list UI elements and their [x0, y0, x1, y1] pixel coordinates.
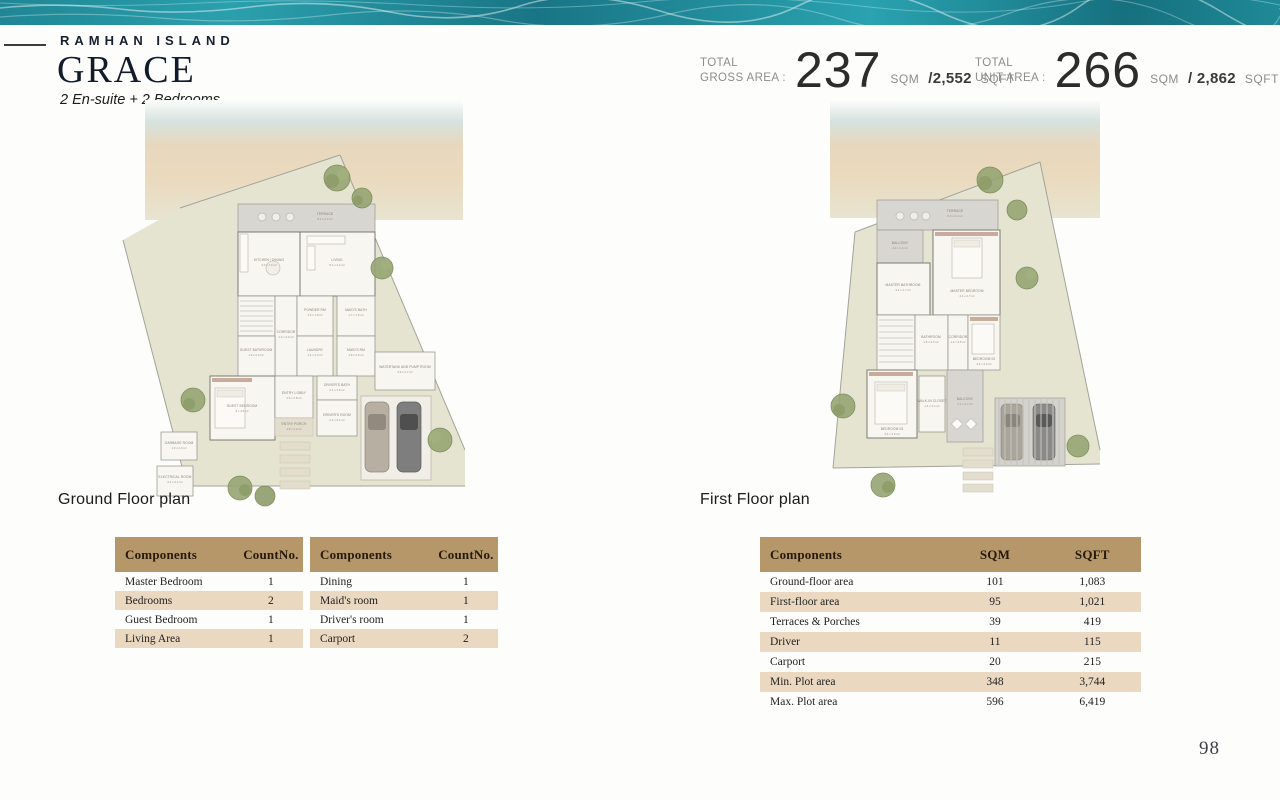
- table-row: Living Area1: [115, 629, 303, 648]
- table-row: Bedrooms2: [115, 591, 303, 610]
- table-cell: Carport: [310, 629, 434, 648]
- stat-label-line1: TOTAL: [975, 57, 1013, 69]
- table-cell: 1: [434, 572, 498, 591]
- car-icon: [397, 402, 421, 472]
- table-cell: First-floor area: [760, 592, 946, 612]
- column-header: Components: [115, 537, 239, 572]
- gross-area-stat: TOTAL GROSS AREA : 237 SQM /2,552 SQFT: [700, 50, 1015, 91]
- gross-area-sqm-value: 237: [795, 50, 881, 91]
- unit-area-label: TOTAL UNIT AREA :: [975, 56, 1046, 91]
- table-cell: 2: [239, 591, 303, 610]
- room-label: MASTER BEDROOM: [950, 289, 983, 293]
- page-title: GRACE: [57, 48, 196, 92]
- water-texture-banner: [0, 0, 1280, 25]
- sqm-unit: SQM: [1150, 72, 1179, 91]
- room-label: GUEST BATHROOM: [240, 348, 273, 352]
- room-dims: 3.0 x 7.4 m²: [261, 263, 276, 267]
- table-cell: 419: [1044, 612, 1141, 632]
- room-label: TERRACE: [317, 212, 334, 216]
- table-row: Carport2: [310, 629, 498, 648]
- room-dims: 3.4 x 3.0 m²: [976, 362, 991, 366]
- room-label: BEDROOM 02: [973, 357, 996, 361]
- sqm-unit: SQM: [890, 72, 919, 91]
- room-label: WALK-IN CLOSET: [917, 399, 946, 403]
- room-label: GUEST BEDROOM: [227, 404, 258, 408]
- room-label: DRIVER'S ROOM: [323, 413, 351, 417]
- tree-icon: [181, 388, 205, 412]
- area-breakdown-table: ComponentsSQMSQFTGround-floor area1011,0…: [760, 537, 1141, 712]
- table-header-row: ComponentsCountNo.: [115, 537, 303, 572]
- sqft-unit: SQFT: [1245, 72, 1279, 91]
- table-row: First-floor area951,021: [760, 592, 1141, 612]
- room-label: WATERTANK AND PUMP ROOM: [379, 365, 431, 369]
- column-header: CountNo.: [239, 537, 303, 572]
- unit-area-sqft-value: / 2,862: [1188, 70, 1236, 91]
- table-cell: 1,021: [1044, 592, 1141, 612]
- table-cell: Living Area: [115, 629, 239, 648]
- tree-icon: [977, 167, 1003, 193]
- page-number: 98: [1199, 738, 1220, 760]
- room-dims: 2.2 x 1.4 m²: [892, 246, 907, 250]
- room-dims: 1.6 x 3.0 m²: [923, 340, 938, 344]
- table-row: Master Bedroom1: [115, 572, 303, 591]
- first-floor-plan: TERRACE 8.2 x 2.2 m² BALCONY 2.2 x 1.4 m…: [815, 100, 1105, 510]
- table-cell: 95: [946, 592, 1043, 612]
- first-floor-caption: First Floor plan: [700, 491, 810, 509]
- table-cell: 6,419: [1044, 692, 1141, 712]
- room-dims: 1.4 x 3.0 m²: [307, 353, 322, 357]
- room-label: BATHROOM: [921, 335, 941, 339]
- unit-area-sqm-value: 266: [1055, 50, 1141, 91]
- table-row: Driver's room1: [310, 610, 498, 629]
- room-dims: 2.2 x 2.1 m²: [167, 480, 182, 484]
- table-row: Ground-floor area1011,083: [760, 572, 1141, 592]
- table-header-row: ComponentsSQMSQFT: [760, 537, 1141, 572]
- room-dims: 1.6 x 1.8 m²: [307, 313, 322, 317]
- carport-roof: [995, 398, 1065, 466]
- room-label: BEDROOM 03: [881, 427, 904, 431]
- room-label: DRIVER'S BATH: [324, 383, 351, 387]
- table-cell: 11: [946, 632, 1043, 652]
- table-cell: 1: [239, 572, 303, 591]
- tree-icon: [228, 476, 252, 500]
- room-dims: 1.6 x 2.8 m²: [286, 396, 301, 400]
- header-rule: [4, 44, 46, 46]
- room-dims: 1.9 x 2.0 m²: [171, 446, 186, 450]
- room-dims: 1.2 x 4.4 m²: [278, 335, 293, 339]
- table-row: Min. Plot area3483,744: [760, 672, 1141, 692]
- table-cell: 115: [1044, 632, 1141, 652]
- stat-label-line1: TOTAL: [700, 57, 738, 69]
- table-cell: Driver's room: [310, 610, 434, 629]
- ground-floor-caption: Ground Floor plan: [58, 491, 190, 509]
- room-label: ELECTRICAL ROOM: [159, 475, 192, 479]
- room-dims: 3 x 4.5 m²: [236, 409, 249, 413]
- tree-icon: [255, 486, 275, 506]
- room-dims: 3.4 x 4.6 m²: [884, 432, 899, 436]
- room-label: LIVING: [331, 258, 343, 262]
- room-label: ENTRY PORCH: [282, 422, 307, 426]
- gross-area-label: TOTAL GROSS AREA :: [700, 56, 786, 91]
- table-cell: 1: [434, 610, 498, 629]
- components-count-table-2: ComponentsCountNo.Dining1Maid's room1Dri…: [310, 537, 498, 648]
- room-dims: 1.9 x 2.3 m²: [348, 353, 363, 357]
- column-header: CountNo.: [434, 537, 498, 572]
- column-header: SQFT: [1044, 537, 1141, 572]
- table-row: Max. Plot area5966,419: [760, 692, 1141, 712]
- tree-icon: [1007, 200, 1027, 220]
- tree-icon: [428, 428, 452, 452]
- room-label: MASTER BATHROOM: [886, 283, 921, 287]
- tree-icon: [324, 165, 350, 191]
- table-cell: Ground-floor area: [760, 572, 946, 592]
- stat-label-line2: GROSS AREA :: [700, 72, 786, 84]
- table-cell: Max. Plot area: [760, 692, 946, 712]
- table-cell: 20: [946, 652, 1043, 672]
- room-label: GARBAGE ROOM: [165, 441, 194, 445]
- column-header: SQM: [946, 537, 1043, 572]
- tree-icon: [1016, 267, 1038, 289]
- room-dims: 2.1 x 3.1 m²: [329, 418, 344, 422]
- table-cell: 101: [946, 572, 1043, 592]
- table-cell: Driver: [760, 632, 946, 652]
- table-cell: Bedrooms: [115, 591, 239, 610]
- room-dims: 1.7 x 1.5 m²: [348, 313, 363, 317]
- walkway-pavers: [963, 448, 993, 492]
- gross-area-sqft-value: /2,552: [928, 70, 972, 91]
- sofa: [307, 236, 345, 244]
- room-dims: 3.9 x 2.7 m²: [397, 370, 412, 374]
- water-ripples: [0, 0, 1280, 25]
- table-cell: 1: [239, 629, 303, 648]
- room-dims: 2.2 x 4.7 m²: [957, 402, 972, 406]
- car-icon: [365, 402, 389, 472]
- table-cell: Master Bedroom: [115, 572, 239, 591]
- tree-icon: [1067, 435, 1089, 457]
- table-cell: 2: [434, 629, 498, 648]
- brand-name: RAMHAN ISLAND: [60, 33, 235, 48]
- table-cell: 1: [434, 591, 498, 610]
- ground-floor-plan: TERRACE 8.2 x 2.2 m² KITCHEN / DINING 3.…: [75, 100, 465, 510]
- room-label: CORRIDOR: [277, 330, 296, 334]
- kitchen-counter: [240, 234, 248, 272]
- table-row: Guest Bedroom1: [115, 610, 303, 629]
- stat-label-line2: UNIT AREA :: [975, 72, 1046, 84]
- room-dims: 1.2 x 3.5 m²: [950, 340, 965, 344]
- tree-icon: [871, 473, 895, 497]
- bed: [972, 324, 994, 354]
- room-label: BALCONY: [892, 241, 909, 245]
- table-cell: 3,744: [1044, 672, 1141, 692]
- table-cell: Dining: [310, 572, 434, 591]
- tree-icon: [371, 257, 393, 279]
- room-label: KITCHEN / DINING: [254, 258, 285, 262]
- room-dims: 8.2 x 2.2 m²: [947, 214, 962, 218]
- table-cell: Min. Plot area: [760, 672, 946, 692]
- room-dims: 1.4 x 3.4 m²: [924, 404, 939, 408]
- table-row: Terraces & Porches39419: [760, 612, 1141, 632]
- unit-area-stat: TOTAL UNIT AREA : 266 SQM / 2,862 SQFT: [975, 50, 1279, 91]
- tree-icon: [831, 394, 855, 418]
- room-label: LAUNDRY: [307, 348, 324, 352]
- room-label: MAID'S BATH: [345, 308, 367, 312]
- table-cell: 348: [946, 672, 1043, 692]
- table-cell: Terraces & Porches: [760, 612, 946, 632]
- room-dims: 5.1 x 4.2 m²: [329, 263, 344, 267]
- table-cell: 39: [946, 612, 1043, 632]
- room-label: BALCONY: [957, 397, 974, 401]
- room-dims: 4.4 x 4.7 m²: [959, 294, 974, 298]
- table-row: Driver11115: [760, 632, 1141, 652]
- column-header: Components: [760, 537, 946, 572]
- room-label: TERRACE: [947, 209, 964, 213]
- components-count-table-1: ComponentsCountNo.Master Bedroom1Bedroom…: [115, 537, 303, 648]
- brochure-page: RAMHAN ISLAND GRACE 2 En-suite + 2 Bedro…: [0, 0, 1280, 800]
- car-icon: [1001, 404, 1023, 460]
- room-dims: 1.9 x 2.4 m²: [248, 353, 263, 357]
- room-label: ENTRY LOBBY: [282, 391, 307, 395]
- room-label: CORRIDOR: [949, 335, 968, 339]
- table-row: Carport20215: [760, 652, 1141, 672]
- table-cell: 596: [946, 692, 1043, 712]
- table-cell: 215: [1044, 652, 1141, 672]
- room-label: MAID'S RM: [347, 348, 365, 352]
- tree-icon: [352, 188, 372, 208]
- car-icon: [1033, 404, 1055, 460]
- column-header: Components: [310, 537, 434, 572]
- room-dims: 1.9 x 1.2 m²: [286, 427, 301, 431]
- table-cell: 1: [239, 610, 303, 629]
- table-cell: Carport: [760, 652, 946, 672]
- table-row: Dining1: [310, 572, 498, 591]
- table-cell: Maid's room: [310, 591, 434, 610]
- table-cell: Guest Bedroom: [115, 610, 239, 629]
- room-dims: 8.2 x 2.2 m²: [317, 217, 332, 221]
- table-row: Maid's room1: [310, 591, 498, 610]
- room-label: POWDER RM: [304, 308, 326, 312]
- room-dims: 3.4 x 1.7 m²: [895, 288, 910, 292]
- table-header-row: ComponentsCountNo.: [310, 537, 498, 572]
- table-cell: 1,083: [1044, 572, 1141, 592]
- room-dims: 2.1 x 1.6 m²: [329, 388, 344, 392]
